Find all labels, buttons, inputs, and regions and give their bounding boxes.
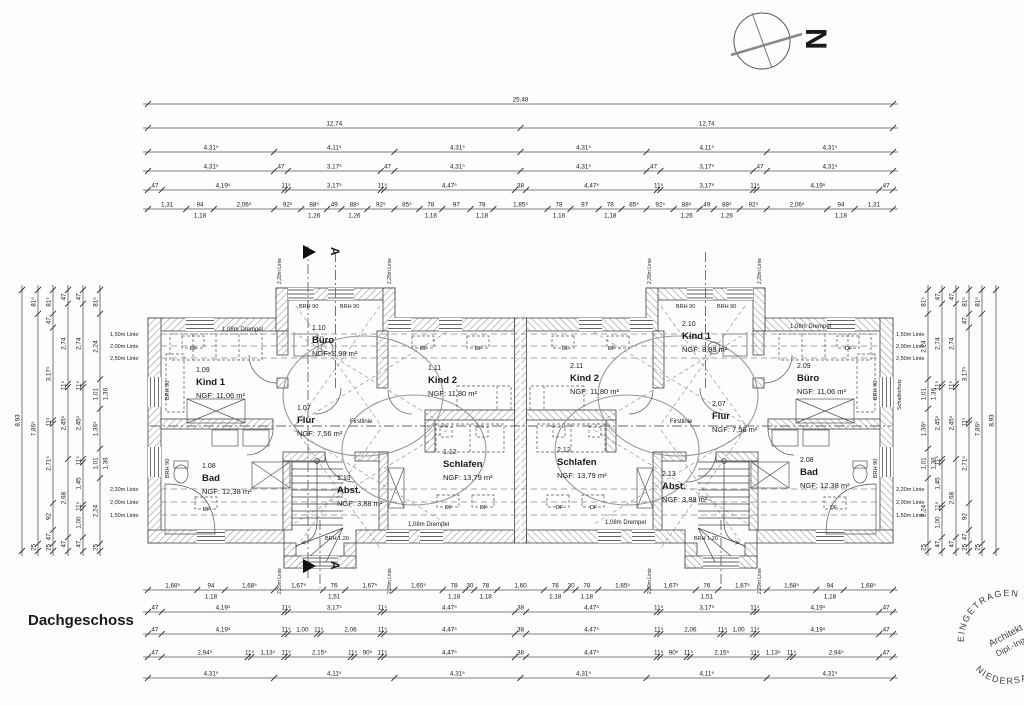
room-area: NGF: 11,06 m² xyxy=(196,391,246,400)
dim-label: 1,68⁵ xyxy=(861,583,876,590)
dim-label: 4,11⁵ xyxy=(700,671,715,678)
dim-label: 4,11⁵ xyxy=(700,145,715,152)
dim-label: 25 xyxy=(975,543,982,551)
dim-label: 1,65⁵ xyxy=(615,583,630,590)
room-label: 2.08BadNGF: 12,38 m² xyxy=(800,457,850,490)
dimension-chain: 25,48 xyxy=(143,97,898,108)
dim-label: 2,68 xyxy=(949,491,956,504)
dim-label: 3,17⁵ xyxy=(327,164,342,171)
dim-label: 1,00 xyxy=(935,516,942,529)
dim-label: 38 xyxy=(517,183,525,190)
dim-label: 7,86⁵ xyxy=(31,421,38,436)
dim-label: 97 xyxy=(453,202,461,209)
dimension-chain: 81⁵2,241,011,361,36⁵1,011,362,2425 xyxy=(93,285,110,556)
room-name: Bad xyxy=(800,467,818,478)
dim-label: 88⁵ xyxy=(309,202,319,209)
dim-label: 4,31⁵ xyxy=(204,145,219,152)
annotation-text: 2,20m Linie xyxy=(896,487,924,493)
dim-label: 3,17⁵ xyxy=(699,164,714,171)
room-name: Schlafen xyxy=(443,459,483,470)
dim-label: 47 xyxy=(883,605,891,612)
dim-sublabel: 1,18 xyxy=(425,213,438,220)
dim-sublabel: 1,36 xyxy=(103,387,110,400)
annotation-text: DF xyxy=(445,505,453,511)
annotation-text: A xyxy=(328,561,342,570)
dim-sublabel: 1,18 xyxy=(480,594,493,601)
dim-label: 1,00 xyxy=(296,627,309,634)
annotation-text: BRH 90 xyxy=(165,381,171,400)
dim-label: 3,17⁵ xyxy=(327,605,342,612)
dim-label: 4,19⁵ xyxy=(216,605,231,612)
dim-label: 47 xyxy=(883,650,891,657)
annotation-text: DF xyxy=(475,346,483,352)
dim-label: 78 xyxy=(451,583,459,590)
dimension-chain: 1,31941,182,06⁵92⁵88⁵1,264988⁵1,2692⁵85⁵… xyxy=(143,202,898,220)
dim-sublabel: 1,18 xyxy=(835,213,848,220)
dimension-chain: 474,19⁵11⁵1,0011⁵2,0611⁵4,47⁵384,47⁵11⁵2… xyxy=(143,627,898,638)
dim-label: 92 xyxy=(962,513,969,521)
room-number: 2.11 xyxy=(570,363,583,370)
annotation-text: DF xyxy=(190,346,198,352)
dim-label: 12,74 xyxy=(699,121,715,128)
dim-label: 4,47⁵ xyxy=(584,627,599,634)
dim-label: 47 xyxy=(61,540,68,548)
dim-sublabel: 1,26 xyxy=(721,213,734,220)
dim-label: 1,68⁵ xyxy=(242,583,257,590)
dim-label: 3,17⁵ xyxy=(699,183,714,190)
party-wall xyxy=(515,318,527,543)
dim-label: 1,67⁵ xyxy=(735,583,750,590)
dim-label: 4,31⁵ xyxy=(823,145,838,152)
dimension-chain: 8,93 xyxy=(989,285,1000,556)
dim-label: 2,71⁵ xyxy=(962,456,969,471)
room-label: 2.11Kind 2NGF: 11,80 m² xyxy=(570,363,620,396)
room-area: NGF: 3,88 m² xyxy=(337,499,383,508)
dim-label: 2,15⁵ xyxy=(312,650,327,657)
room-number: 1.11 xyxy=(428,365,441,372)
dim-label: 4,31⁵ xyxy=(450,671,465,678)
dim-label: 2,15⁵ xyxy=(714,650,729,657)
annotation-text: 2,29m Linie xyxy=(647,568,653,594)
dim-label: 4,31⁵ xyxy=(204,671,219,678)
dim-label: 25 xyxy=(31,543,38,551)
annotation-text: DF xyxy=(830,505,838,511)
dim-label: 4,11⁵ xyxy=(327,145,342,152)
dim-label: 47 xyxy=(76,293,83,301)
dimension-chain: 8,93 xyxy=(15,285,26,556)
dim-label: 3,17⁵ xyxy=(46,366,53,381)
room-name: Büro xyxy=(312,335,334,346)
dim-label: 4,31⁵ xyxy=(823,164,838,171)
architect-stamp: EINGETRAGEN IN NIEDERSACHSEN • Architekt… xyxy=(942,572,1024,703)
dim-label: 2,94⁵ xyxy=(197,650,212,657)
room-number: 1.07 xyxy=(297,405,311,412)
annotation-text: BRH 90 xyxy=(717,304,736,310)
dim-label: 1,00 xyxy=(732,627,745,634)
dim-label: 25 xyxy=(46,543,53,551)
dim-label: 88⁵ xyxy=(682,202,692,209)
dim-label: 1,65⁵ xyxy=(411,583,426,590)
dimension-chain: 81⁵473,17⁵11⁵2,71⁵924725 xyxy=(46,285,57,556)
dim-label: 1,36⁵ xyxy=(921,421,928,436)
room-label: 2.09BüroNGF: 11,06 m² xyxy=(797,363,847,396)
annotation-text: 2,29m Linie xyxy=(387,258,393,284)
dimension-chain: 81⁵473,17⁵11⁵2,71⁵924725 xyxy=(962,285,973,556)
room-name: Kind 2 xyxy=(428,375,457,386)
annotation-text: 1,50m Linie xyxy=(896,332,924,338)
annotation-text: BRH 90 xyxy=(165,459,171,478)
dimension-chain: 472,94⁵11⁵1,13⁵11⁵2,15⁵11⁵90⁵11⁵4,47⁵384… xyxy=(143,650,898,661)
annotation-text: 1,08m Drempel xyxy=(605,520,646,526)
dim-sublabel: 1,51 xyxy=(328,594,341,601)
dim-label: 8,93 xyxy=(15,414,22,427)
dim-sublabel: 1,18 xyxy=(448,594,461,601)
dim-label: 47 xyxy=(76,540,83,548)
dim-label: 2,45⁵ xyxy=(61,415,68,430)
dim-label: 85⁵ xyxy=(629,202,639,209)
annotation-text: 2,29m Linie xyxy=(757,258,763,284)
dim-label: 2,24 xyxy=(93,504,100,517)
room-name: Flur xyxy=(297,415,315,426)
dim-sublabel: 1,26 xyxy=(308,213,321,220)
dim-sublabel: 1,18 xyxy=(476,213,489,220)
dim-label: 78 xyxy=(556,202,564,209)
room-area: NGF: 11,06 m² xyxy=(797,387,847,396)
dim-label: 2,68 xyxy=(61,491,68,504)
dim-label: 3,17⁵ xyxy=(699,605,714,612)
dim-label: 4,31⁵ xyxy=(576,164,591,171)
dim-label: 92⁵ xyxy=(376,202,386,209)
annotation-text: 2,29m Linie xyxy=(277,258,283,284)
dim-label: 47 xyxy=(935,293,942,301)
dim-label: 25,48 xyxy=(513,97,529,104)
dimension-chains: 25,4812,7412,744,31⁵4,11⁵4,31⁵4,31⁵4,11⁵… xyxy=(15,97,1000,682)
dim-label: 78 xyxy=(607,202,615,209)
dim-label: 47 xyxy=(384,164,392,171)
dim-sublabel: 1,18 xyxy=(824,594,837,601)
room-number: 1.09 xyxy=(196,367,210,374)
dim-label: 4,47⁵ xyxy=(442,183,457,190)
dim-label: 1,45 xyxy=(76,477,83,490)
dim-label: 47 xyxy=(151,650,159,657)
dim-label: 4,31⁵ xyxy=(450,164,465,171)
annotation-text: 2,50m Linie xyxy=(896,356,924,362)
dim-label: 1,67⁵ xyxy=(664,583,679,590)
dim-label: 30 xyxy=(568,583,576,590)
dim-label: 4,11⁵ xyxy=(327,671,342,678)
dim-label: 94 xyxy=(837,202,845,209)
dim-label: 1,31 xyxy=(161,202,174,209)
dim-label: 1,00 xyxy=(76,516,83,529)
dim-label: 94 xyxy=(197,202,205,209)
dim-label: 78 xyxy=(583,583,591,590)
room-name: Kind 1 xyxy=(682,331,712,342)
room-number: 1.12 xyxy=(443,449,457,456)
dim-label: 81⁵ xyxy=(93,297,100,307)
dim-label: 2,74 xyxy=(949,337,956,350)
dimension-chain: 4,31⁵4,11⁵4,31⁵4,31⁵4,11⁵4,31⁵ xyxy=(143,671,898,682)
room-area: NGF: 7,56 m² xyxy=(712,425,758,434)
dim-label: 4,19⁵ xyxy=(810,183,825,190)
dim-label: 92⁵ xyxy=(283,202,293,209)
annotation-text: BRH 90 xyxy=(873,459,879,478)
dim-label: 1,67⁵ xyxy=(291,583,306,590)
room-name: Kind 1 xyxy=(196,377,226,388)
room-name: Flur xyxy=(712,411,730,422)
dim-label: 47 xyxy=(46,317,53,325)
room-name: Abst. xyxy=(662,481,686,492)
dim-label: 3,17⁵ xyxy=(962,366,969,381)
room-label: 1.08BadNGF: 12,38 m² xyxy=(202,463,252,496)
dim-label: 1,45 xyxy=(935,477,942,490)
dim-label: 1,13⁵ xyxy=(260,650,275,657)
dim-label: 47 xyxy=(61,293,68,301)
dim-label: 7,86⁵ xyxy=(975,421,982,436)
annotation-text: Firstlinie xyxy=(670,419,693,425)
dim-label: 78 xyxy=(478,202,486,209)
room-area: NGF: 13,79 m² xyxy=(443,473,493,482)
north-label: N xyxy=(799,28,832,50)
room-number: 2.12 xyxy=(557,447,571,454)
room-name: Bad xyxy=(202,473,220,484)
dim-label: 92⁵ xyxy=(748,202,758,209)
annotation-text: DF xyxy=(480,505,488,511)
dim-label: 4,19⁵ xyxy=(810,605,825,612)
room-label: 2.10Kind 1NGF: 8,98 m² xyxy=(682,321,728,354)
dim-label: 47 xyxy=(757,164,765,171)
dim-label: 47 xyxy=(650,164,658,171)
annotation-text: 1,50m Linie xyxy=(110,513,138,519)
dim-label: 2,45⁵ xyxy=(935,415,942,430)
annotation-text: 2,00m Linie xyxy=(896,344,924,350)
dim-label: 1,85⁵ xyxy=(513,202,528,209)
annotation-text: BRH 90 xyxy=(299,304,318,310)
room-number: 2.13 xyxy=(662,471,676,478)
dim-label: 2,74 xyxy=(76,337,83,350)
dim-label: 47 xyxy=(883,183,891,190)
dim-label: 4,47⁵ xyxy=(442,627,457,634)
dim-label: 47 xyxy=(949,293,956,301)
drawing-page: N EINGETRAGEN IN NIEDERSACHSEN • Archite… xyxy=(0,0,1024,706)
dim-label: 4,47⁵ xyxy=(584,183,599,190)
annotation-text: 1,50m Linie xyxy=(896,513,924,519)
room-area: NGF: 3,88 m² xyxy=(662,495,708,504)
section-marker-icon xyxy=(303,245,316,259)
dimension-chain: 472,7411⁵2,45⁵2,6847 xyxy=(61,285,72,556)
room-area: NGF: 12,38 m² xyxy=(800,481,850,490)
annotation-text: 1,08m Drempel xyxy=(408,522,449,528)
dimension-chain: 474,19⁵11⁵3,17⁵11⁵4,47⁵384,47⁵11⁵3,17⁵11… xyxy=(143,183,898,194)
dim-label: 47 xyxy=(962,317,969,325)
annotation-text: BRH 90 xyxy=(676,304,695,310)
dim-label: 1,68⁵ xyxy=(784,583,799,590)
annotation-text: BRH 90 xyxy=(873,381,879,400)
dim-label: 88⁵ xyxy=(722,202,732,209)
annotation-text: BRH 90 xyxy=(340,304,359,310)
dim-label: 47 xyxy=(949,540,956,548)
dim-label: 4,31⁵ xyxy=(576,671,591,678)
dim-label: 94 xyxy=(208,583,216,590)
dim-label: 47 xyxy=(151,183,159,190)
dim-sublabel: 1,36 xyxy=(103,457,110,470)
dim-sublabel: 1,18 xyxy=(581,594,594,601)
dim-label: 2,71⁵ xyxy=(46,456,53,471)
annotation-text: DF xyxy=(608,346,616,352)
annotation-text: 2,29m Linie xyxy=(277,568,283,594)
dim-label: 4,47⁵ xyxy=(442,605,457,612)
annotation-text: 1,08m Drempel xyxy=(790,324,831,330)
annotation-text: 1,08m Drempel xyxy=(222,327,263,333)
dim-label: 78 xyxy=(552,583,560,590)
room-label: 1.11Kind 2NGF: 11,80 m² xyxy=(428,365,478,398)
room-number: 1.13 xyxy=(337,475,351,482)
annotation-text: DF xyxy=(845,346,853,352)
dim-label: 1,13⁵ xyxy=(766,650,781,657)
dim-label: 1,36⁵ xyxy=(93,421,100,436)
dim-label: 92⁵ xyxy=(655,202,665,209)
dim-label: 1,67⁵ xyxy=(362,583,377,590)
dim-sublabel: 1,26 xyxy=(680,213,693,220)
room-label: 1.10BüroNGF: 8,98 m² xyxy=(312,325,358,358)
dim-label: 47 xyxy=(962,533,969,541)
dim-label: 4,19⁵ xyxy=(216,627,231,634)
annotation-text: DF xyxy=(590,505,598,511)
annotation-text: BRH 1,20 xyxy=(694,536,718,542)
room-area: NGF: 11,80 m² xyxy=(428,389,478,398)
dimension-chain: 81⁵7,86⁵25 xyxy=(31,285,42,556)
dim-sublabel: 1,18 xyxy=(604,213,617,220)
dim-label: 38 xyxy=(517,627,525,634)
annotation-text: 1,50m Linie xyxy=(110,332,138,338)
dim-label: 49 xyxy=(331,202,339,209)
dim-label: 2,45⁵ xyxy=(949,415,956,430)
dim-label: 25 xyxy=(921,543,928,551)
annotation-text: 2,00m Linie xyxy=(110,344,138,350)
dimension-chain: 81⁵7,86⁵25 xyxy=(975,285,986,556)
room-name: Schlafen xyxy=(557,457,597,468)
room-name: Kind 2 xyxy=(570,373,599,384)
dim-label: 47 xyxy=(46,533,53,541)
annotation-text: DF xyxy=(562,346,570,352)
annotation-text: DF xyxy=(420,346,428,352)
annotation-text: 2,00m Linie xyxy=(896,500,924,506)
dim-label: 97 xyxy=(581,202,589,209)
dim-label: 78 xyxy=(482,583,490,590)
dimension-chain: 472,7411⁵2,45⁵11⁵1,4511⁵1,0047 xyxy=(935,285,946,556)
dim-label: 2,74 xyxy=(61,337,68,350)
dim-label: 2,24 xyxy=(93,340,100,353)
dimension-chain: 12,7412,74 xyxy=(143,121,898,132)
plan-title: Dachgeschoss xyxy=(28,612,134,629)
dim-sublabel: 1,18 xyxy=(553,213,566,220)
annotation-text: 2,50m Linie xyxy=(110,356,138,362)
dim-label: 94 xyxy=(826,583,834,590)
dim-label: 8,93 xyxy=(989,414,996,427)
dim-label: 92 xyxy=(46,513,53,521)
dim-label: 4,31⁵ xyxy=(204,164,219,171)
room-area: NGF: 11,80 m² xyxy=(570,387,620,396)
annotation-text: 2,29m Linie xyxy=(757,568,763,594)
dim-label: 4,19⁵ xyxy=(810,627,825,634)
dimension-chain: 4,31⁵4,11⁵4,31⁵4,31⁵4,11⁵4,31⁵ xyxy=(143,145,898,156)
annotation-text: Schallschutz xyxy=(897,379,903,410)
room-area: NGF: 13,79 m² xyxy=(557,471,607,480)
dim-label: 81⁵ xyxy=(921,297,928,307)
annotation-text: Firstlinie xyxy=(350,419,373,425)
dim-label: 49 xyxy=(703,202,711,209)
dim-label: 4,31⁵ xyxy=(450,145,465,152)
dimension-chain: 472,7411⁵2,45⁵2,6847 xyxy=(949,285,960,556)
dim-label: 88⁵ xyxy=(350,202,360,209)
dimension-chain: 474,19⁵11⁵3,17⁵11⁵4,47⁵384,47⁵11⁵3,17⁵11… xyxy=(143,605,898,616)
room-name: Büro xyxy=(797,373,819,384)
dim-label: 12,74 xyxy=(326,121,342,128)
dim-label: 1,31 xyxy=(868,202,881,209)
dim-label: 47 xyxy=(151,627,159,634)
dim-sublabel: 1,18 xyxy=(194,213,207,220)
dim-label: 47 xyxy=(883,627,891,634)
dim-label: 4,47⁵ xyxy=(584,605,599,612)
dim-label: 85⁵ xyxy=(402,202,412,209)
dim-sublabel: 1,51 xyxy=(701,594,714,601)
dim-label: 2,06⁵ xyxy=(790,202,805,209)
dim-label: 4,19⁵ xyxy=(216,183,231,190)
dim-label: 90⁵ xyxy=(363,650,373,657)
dim-label: 25 xyxy=(93,543,100,551)
dim-sublabel: 1,18 xyxy=(549,594,562,601)
dim-label: 76 xyxy=(331,583,339,590)
room-area: NGF: 8,98 m² xyxy=(312,349,358,358)
dim-label: 1,60 xyxy=(514,583,527,590)
dim-label: 1,01 xyxy=(93,457,100,470)
room-name: Abst. xyxy=(337,485,361,496)
dim-label: 2,45⁵ xyxy=(76,415,83,430)
room-number: 2.08 xyxy=(800,457,814,464)
annotation-text: DF xyxy=(556,505,564,511)
dim-label: 4,47⁵ xyxy=(584,650,599,657)
room-number: 2.09 xyxy=(797,363,811,370)
room-label: 1.09Kind 1NGF: 11,06 m² xyxy=(196,367,246,400)
dim-label: 38 xyxy=(517,605,525,612)
room-number: 1.10 xyxy=(312,325,326,332)
annotation-text: 2,00m Linie xyxy=(110,500,138,506)
dim-label: 81⁵ xyxy=(31,297,38,307)
dim-label: 4,31⁵ xyxy=(576,145,591,152)
annotation-text: DF xyxy=(203,507,211,513)
dim-label: 4,47⁵ xyxy=(442,650,457,657)
annotation-text: BRH 1,20 xyxy=(325,536,349,542)
dim-label: 90⁵ xyxy=(669,650,679,657)
room-area: NGF: 12,38 m² xyxy=(202,487,252,496)
dim-label: 76 xyxy=(703,583,711,590)
staircase xyxy=(291,459,343,563)
floorplan-drawing: N EINGETRAGEN IN NIEDERSACHSEN • Archite… xyxy=(0,0,1024,706)
dim-label: 78 xyxy=(427,202,435,209)
dim-label: 2,74 xyxy=(935,337,942,350)
dim-label: 47 xyxy=(935,540,942,548)
dimension-chain: 4,31⁵473,17⁵474,31⁵4,31⁵473,17⁵474,31⁵ xyxy=(143,164,898,175)
annotation-text: 2,29m Linie xyxy=(387,568,393,594)
dim-label: 81⁵ xyxy=(962,297,969,307)
north-arrow-icon: N xyxy=(731,13,832,69)
dim-label: 1,68⁵ xyxy=(165,583,180,590)
room-area: NGF: 7,56 m² xyxy=(297,429,343,438)
dim-label: 3,17⁵ xyxy=(327,183,342,190)
dimension-chain: 472,7411⁵2,45⁵11⁵1,4511⁵1,0047 xyxy=(76,285,87,556)
room-number: 2.10 xyxy=(682,321,696,328)
dim-label: 81⁵ xyxy=(975,297,982,307)
dim-label: 25 xyxy=(962,543,969,551)
